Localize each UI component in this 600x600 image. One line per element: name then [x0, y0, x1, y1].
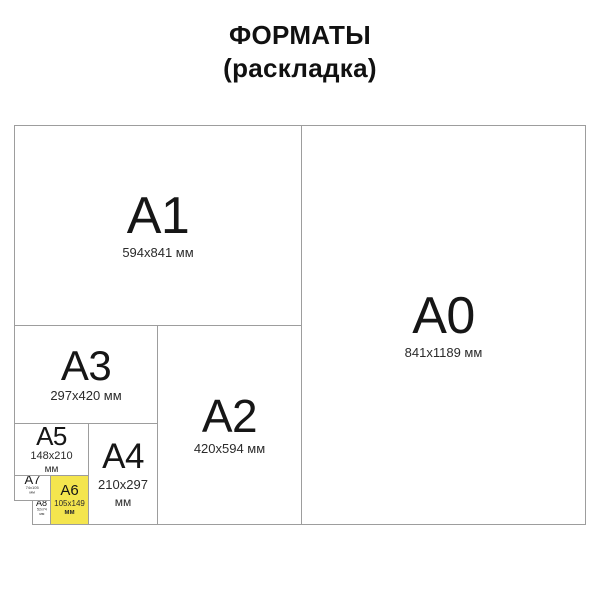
format-unit-a4: мм — [115, 496, 132, 510]
format-dims-a3: 297x420 мм — [50, 389, 121, 404]
format-box-a0: A0 841x1189 мм — [301, 125, 586, 525]
title-line1: ФОРМАТЫ — [0, 19, 600, 52]
format-dims-a7: 74x105 мм — [26, 486, 39, 495]
format-box-a8: A8 52x74 мм — [32, 500, 51, 525]
format-box-a4: A4 210x297 мм — [88, 423, 158, 525]
format-label-a1: A1 — [127, 190, 190, 242]
format-label-a3: A3 — [61, 345, 111, 387]
format-box-a2: A2 420x594 мм — [157, 325, 302, 525]
format-label-a5: A5 — [36, 423, 67, 449]
format-dims-a5: 148x210 — [30, 450, 72, 463]
format-box-a5: A5 148x210 мм — [14, 423, 89, 476]
format-dims-a6: 105x149 — [54, 499, 85, 508]
format-label-a2: A2 — [202, 393, 257, 439]
format-label-a6: A6 — [60, 483, 78, 498]
format-unit-a5: мм — [45, 464, 59, 476]
format-dims-a0: 841x1189 мм — [405, 346, 483, 361]
format-label-a4: A4 — [102, 439, 144, 474]
format-box-a1: A1 594x841 мм — [14, 125, 302, 326]
format-dims-a4: 210x297 — [98, 478, 148, 493]
format-dims-a2: 420x594 мм — [194, 442, 265, 457]
format-label-a0: A0 — [412, 290, 475, 342]
format-box-a3: A3 297x420 мм — [14, 325, 158, 424]
format-unit-a7: мм — [26, 490, 39, 494]
format-unit-a6: мм — [64, 509, 74, 517]
page-title: ФОРМАТЫ (раскладка) — [0, 19, 600, 85]
format-dims-a8: 52x74 мм — [37, 508, 47, 516]
formats-diagram: ФОРМАТЫ (раскладка) A0 841x1189 мм A1 59… — [0, 0, 600, 600]
format-box-a7: A7 74x105 мм — [14, 475, 51, 501]
format-unit-a8: мм — [37, 512, 47, 516]
format-box-a6-highlighted: A6 105x149 мм — [50, 475, 89, 525]
format-label-a7: A7 — [25, 475, 41, 486]
title-line2: (раскладка) — [0, 52, 600, 85]
format-dims-a1: 594x841 мм — [122, 246, 193, 261]
